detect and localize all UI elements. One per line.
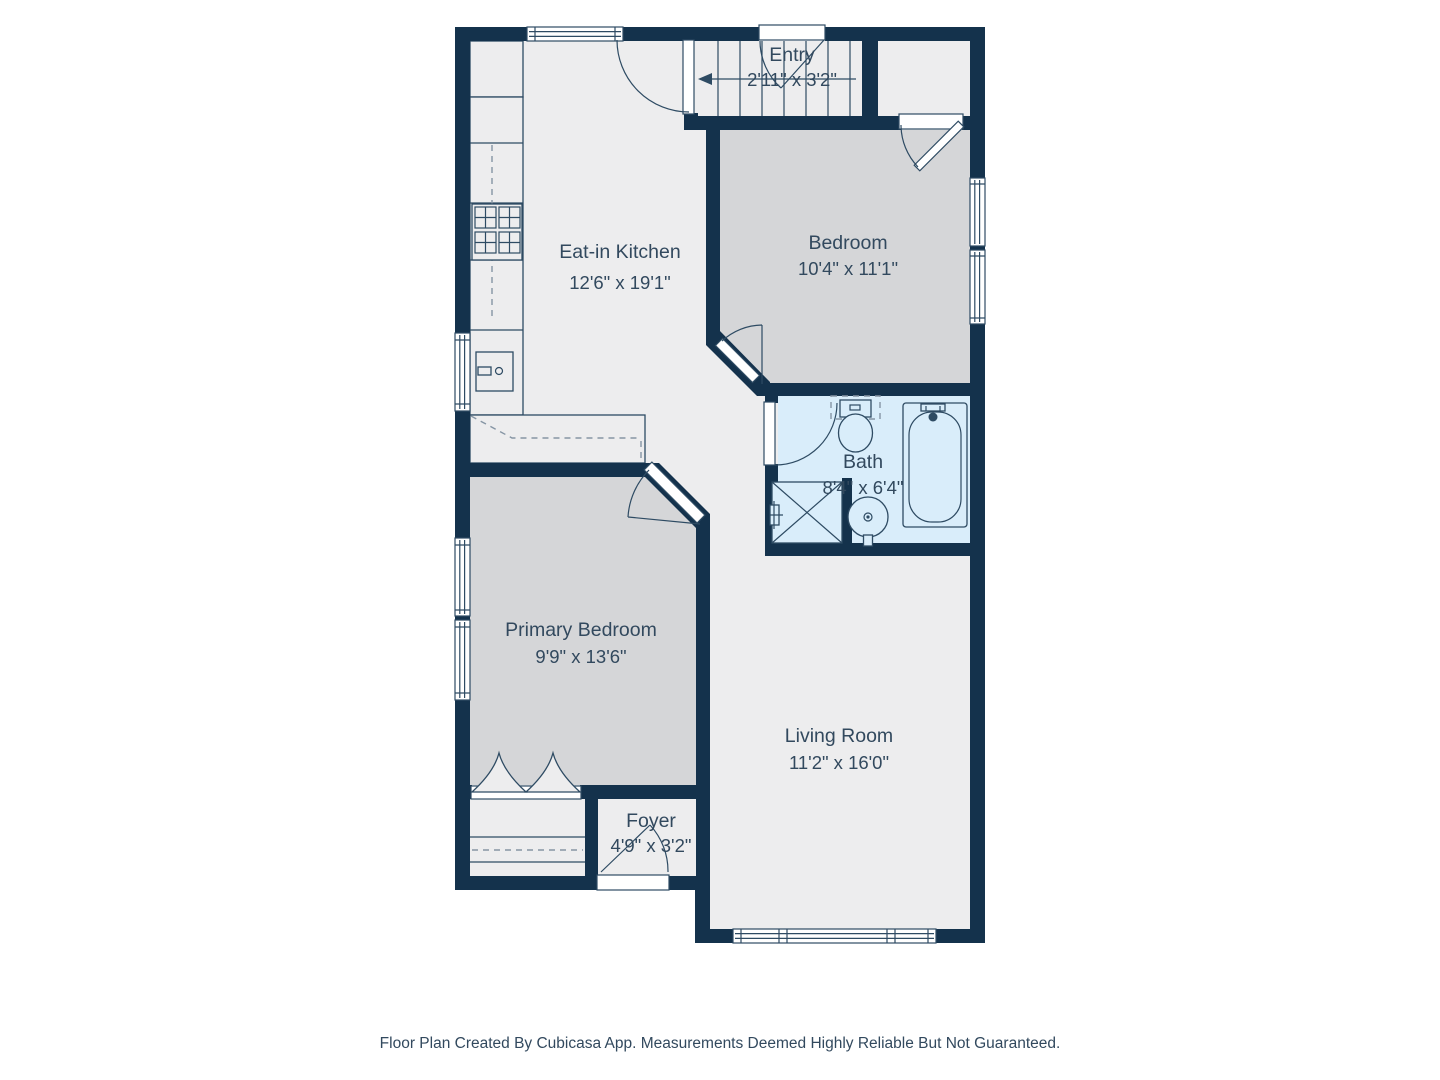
entry-dims: 2'11" x 3'2": [747, 69, 837, 90]
entry-label: Entry: [769, 44, 815, 66]
bath-label: Bath: [843, 451, 883, 473]
floor-plan: Entry 2'11" x 3'2" Bedroom 10'4" x 11'1"…: [0, 0, 1440, 1080]
floor-plan-page: Entry 2'11" x 3'2" Bedroom 10'4" x 11'1"…: [0, 0, 1440, 1080]
bathtub: [903, 403, 967, 527]
kitchen-label: Eat-in Kitchen: [559, 241, 680, 263]
bedroom-label: Bedroom: [808, 232, 887, 254]
foyer-dims: 4'9" x 3'2": [611, 835, 692, 856]
foyer-label: Foyer: [626, 810, 676, 832]
living-room-dims: 11'2" x 16'0": [789, 752, 889, 773]
bath-dims: 8'4" x 6'4": [823, 477, 904, 498]
stove: [472, 204, 522, 260]
window-kitchen-top: [527, 27, 623, 41]
bedroom-dims: 10'4" x 11'1": [798, 258, 898, 279]
living-room-label: Living Room: [785, 725, 893, 747]
refrigerator: [470, 41, 523, 97]
window-primary-left-1: [455, 538, 470, 616]
primary-bedroom-dims: 9'9" x 13'6": [535, 646, 626, 667]
window-bedroom-right-2: [970, 250, 985, 324]
kitchen-sink: [476, 352, 513, 391]
window-primary-left-2: [455, 620, 470, 700]
window-bedroom-right-1: [970, 178, 985, 246]
window-kitchen-left: [455, 333, 470, 411]
primary-bedroom-label: Primary Bedroom: [505, 619, 657, 641]
bedroom-floor: [706, 130, 970, 383]
kitchen-dims: 12'6" x 19'1": [569, 272, 670, 293]
kitchen-counter-bottom: [470, 415, 645, 463]
footer-disclaimer: Floor Plan Created By Cubicasa App. Meas…: [380, 1035, 1061, 1052]
window-living-bottom: [733, 929, 936, 943]
